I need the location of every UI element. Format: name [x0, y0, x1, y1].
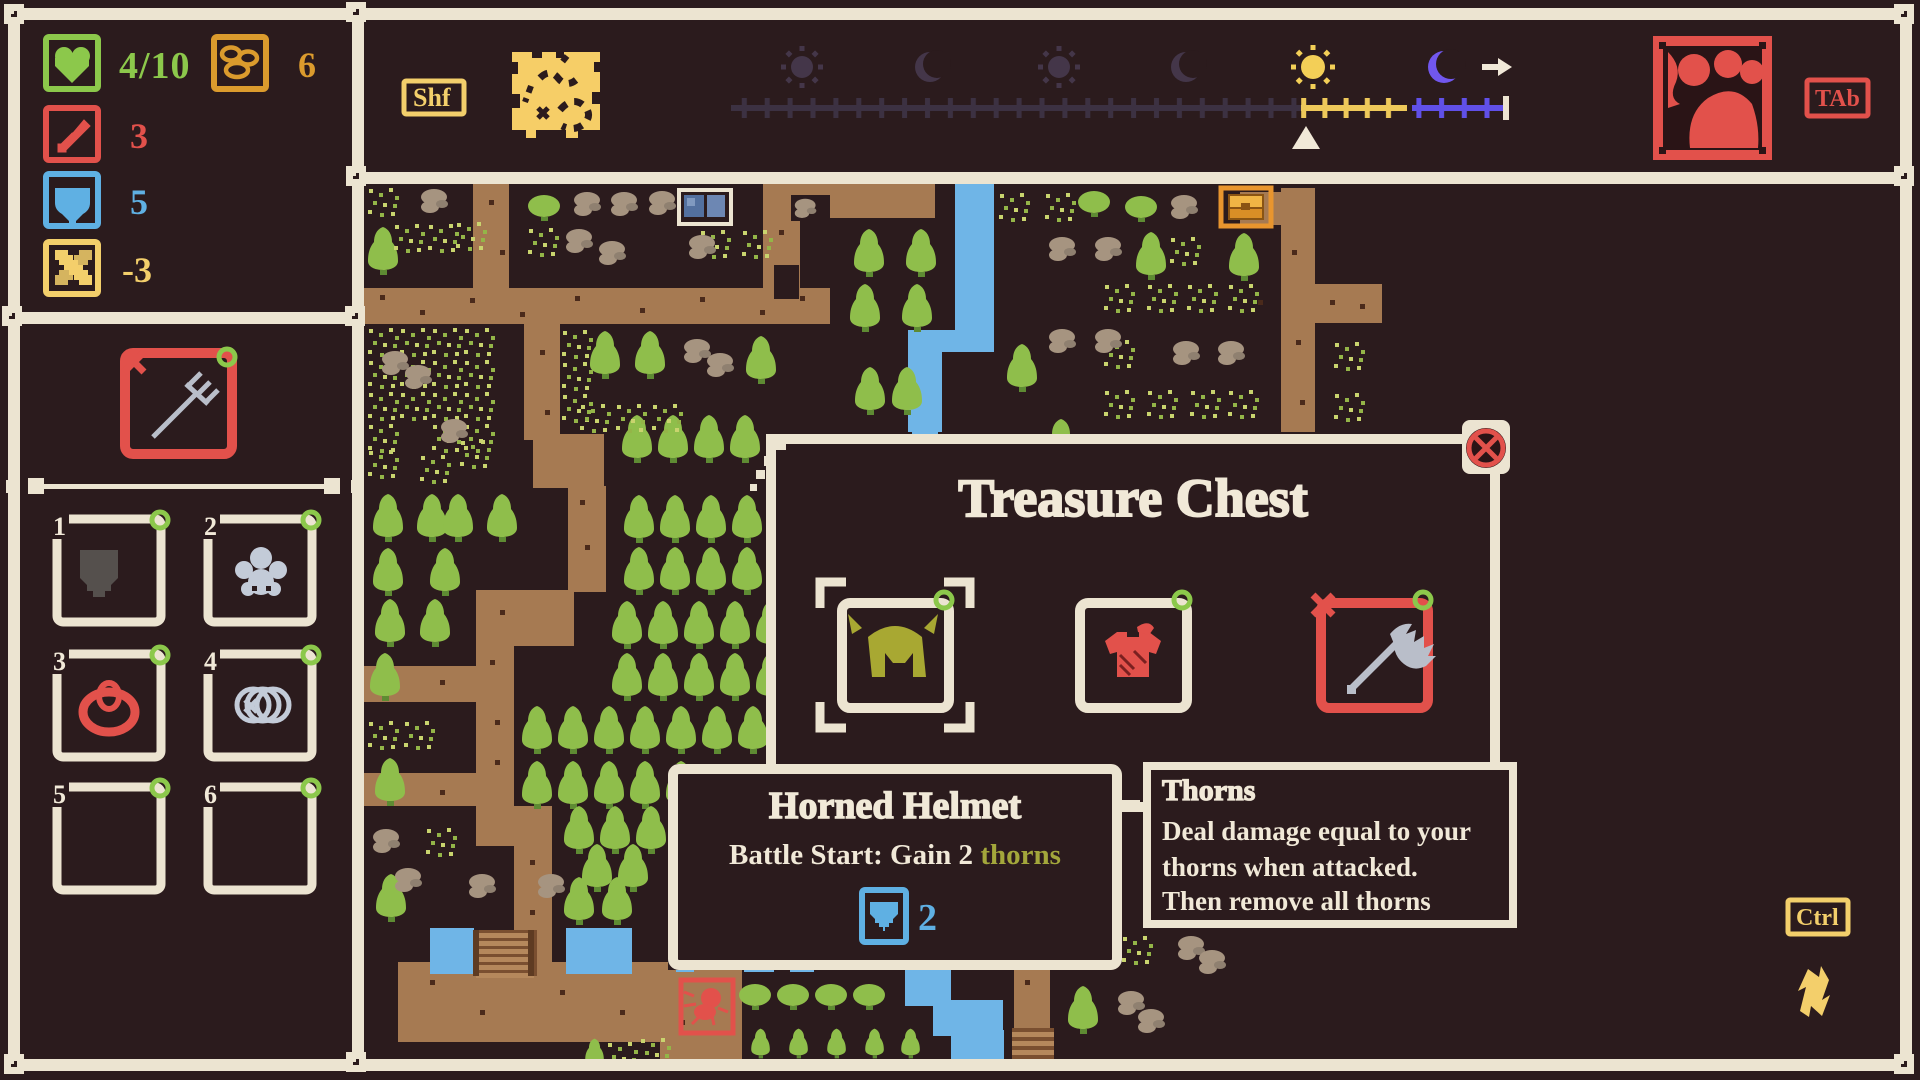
svg-text:6: 6 [204, 780, 217, 809]
svg-text:5: 5 [53, 780, 66, 809]
svg-text:Battle Start: Gain 2 thorns: Battle Start: Gain 2 thorns [729, 839, 1061, 871]
svg-text:2: 2 [204, 512, 217, 541]
svg-text:Thorns: Thorns [1162, 774, 1255, 807]
svg-text:4/10: 4/10 [119, 45, 191, 87]
svg-text:Shf: Shf [413, 83, 451, 112]
svg-text:Deal damage equal to your: Deal damage equal to your [1162, 816, 1471, 846]
svg-text:Horned Helmet: Horned Helmet [769, 785, 1022, 827]
svg-text:Treasure Chest: Treasure Chest [958, 468, 1307, 528]
svg-text:5: 5 [130, 182, 148, 222]
svg-text:2: 2 [918, 897, 937, 939]
svg-text:Then remove all thorns: Then remove all thorns [1162, 886, 1431, 916]
svg-text:-3: -3 [122, 250, 152, 290]
svg-text:3: 3 [53, 647, 66, 676]
svg-text:3: 3 [130, 116, 148, 156]
svg-text:4: 4 [204, 647, 217, 676]
svg-text:Ctrl: Ctrl [1796, 905, 1839, 931]
svg-text:6: 6 [298, 45, 316, 85]
svg-text:1: 1 [53, 512, 66, 541]
svg-text:TAb: TAb [1815, 86, 1860, 112]
svg-text:thorns when attacked.: thorns when attacked. [1162, 852, 1418, 882]
